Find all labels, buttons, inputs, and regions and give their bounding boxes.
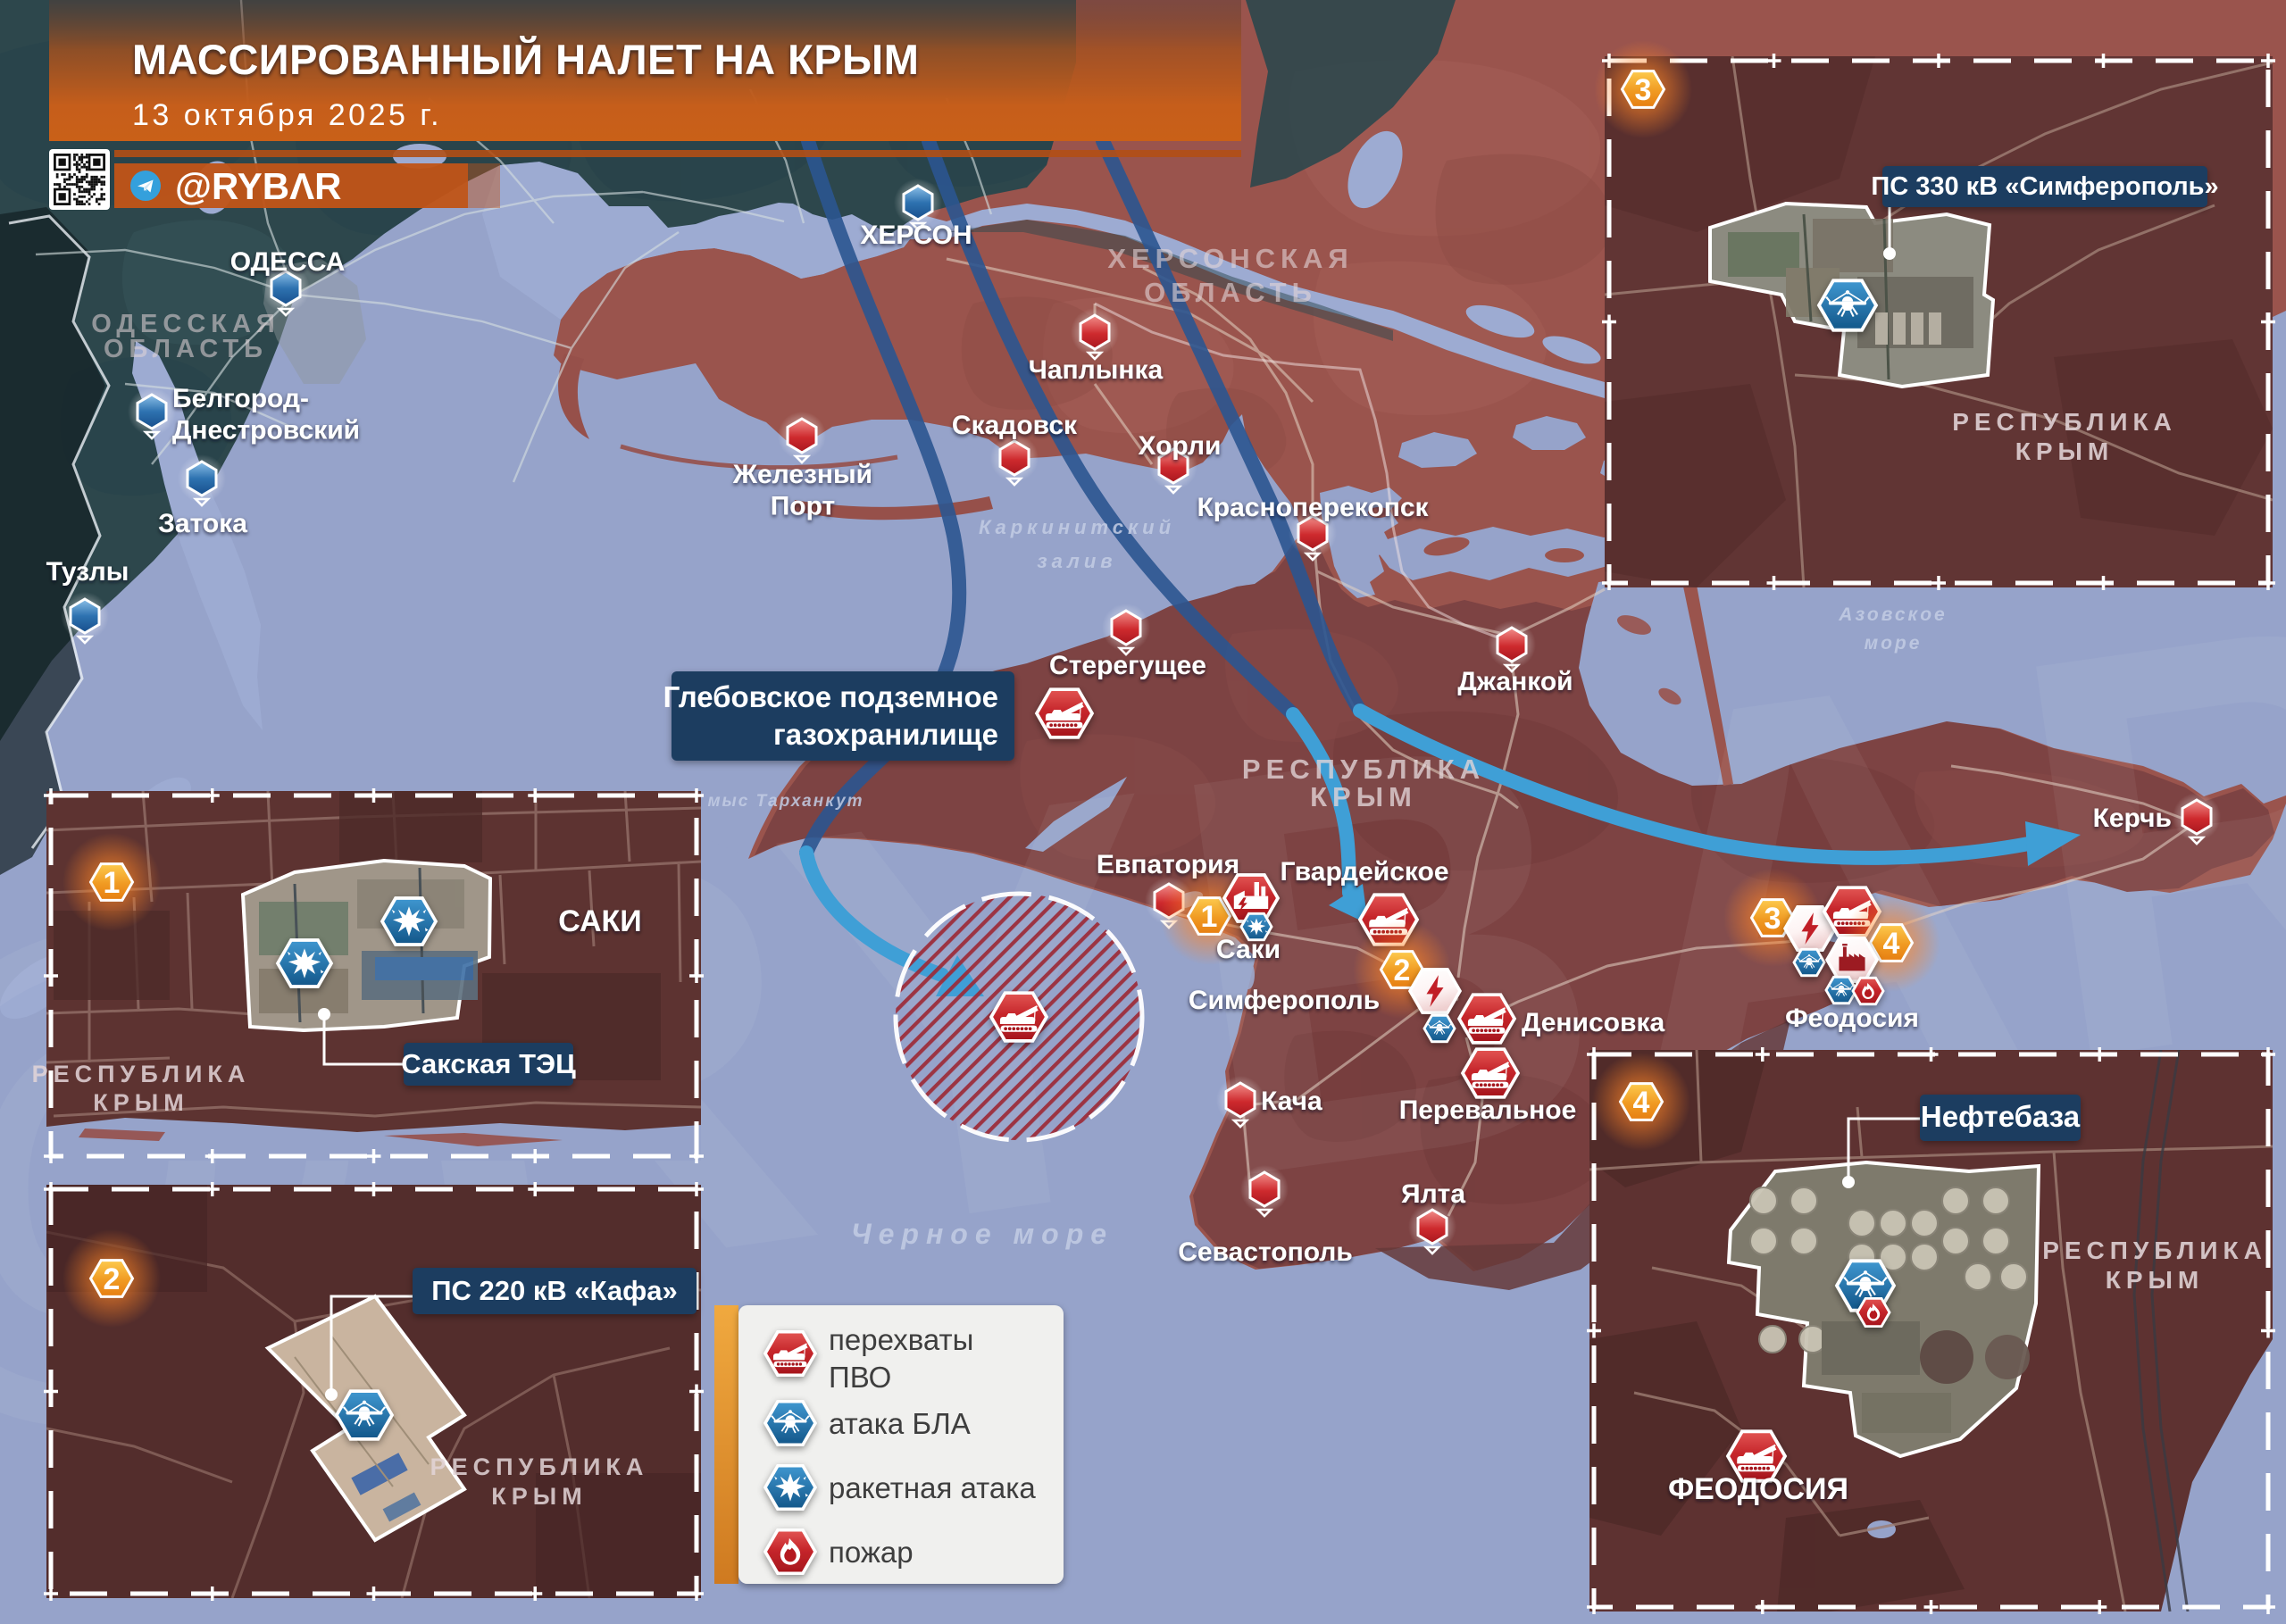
svg-text:Керчь: Керчь bbox=[2093, 804, 2172, 833]
svg-text:пожар: пожар bbox=[829, 1536, 914, 1569]
svg-text:Порт: Порт bbox=[771, 491, 836, 521]
svg-text:залив: залив bbox=[1037, 550, 1116, 572]
svg-text:Феодосия: Феодосия bbox=[1785, 1004, 1919, 1033]
svg-text:Хорли: Хорли bbox=[1138, 431, 1221, 461]
svg-text:РЕСПУБЛИКА: РЕСПУБЛИКА bbox=[2042, 1237, 2267, 1264]
svg-text:Сакская ТЭЦ: Сакская ТЭЦ bbox=[401, 1048, 576, 1079]
svg-text:МАССИРОВАННЫЙ НАЛЕТ НА КРЫМ: МАССИРОВАННЫЙ НАЛЕТ НА КРЫМ bbox=[132, 36, 919, 83]
svg-text:атака БЛА: атака БЛА bbox=[829, 1407, 971, 1440]
svg-text:ФЕОДОСИЯ: ФЕОДОСИЯ bbox=[1668, 1472, 1848, 1506]
svg-text:1: 1 bbox=[104, 866, 121, 900]
svg-text:Джанкой: Джанкой bbox=[1457, 667, 1573, 696]
svg-text:ПС 330 кВ «Симферополь»: ПС 330 кВ «Симферополь» bbox=[1871, 172, 2218, 201]
svg-text:Тузлы: Тузлы bbox=[46, 557, 129, 587]
svg-text:Скадовск: Скадовск bbox=[952, 411, 1078, 440]
svg-text:ХЕРСОН: ХЕРСОН bbox=[860, 221, 972, 250]
svg-text:Железный: Железный bbox=[732, 460, 872, 489]
svg-text:3: 3 bbox=[1635, 73, 1652, 107]
svg-text:Нефтебаза: Нефтебаза bbox=[1921, 1100, 2081, 1133]
svg-text:ПВО: ПВО bbox=[829, 1361, 891, 1394]
svg-text:Стерегущее: Стерегущее bbox=[1049, 651, 1206, 680]
svg-text:Белгород-: Белгород- bbox=[172, 384, 309, 413]
svg-text:КРЫМ: КРЫМ bbox=[491, 1483, 587, 1510]
svg-text:САКИ: САКИ bbox=[558, 904, 641, 938]
svg-text:ОДЕССА: ОДЕССА bbox=[230, 247, 346, 277]
svg-text:3: 3 bbox=[1765, 902, 1781, 936]
svg-text:Перевальное: Перевальное bbox=[1399, 1095, 1577, 1125]
svg-text:КРЫМ: КРЫМ bbox=[2106, 1266, 2205, 1294]
svg-text:РЕСПУБЛИКА: РЕСПУБЛИКА bbox=[1952, 408, 2177, 436]
svg-text:Денисовка: Денисовка bbox=[1522, 1008, 1664, 1037]
svg-text:1: 1 bbox=[1201, 900, 1218, 934]
svg-text:РЕСПУБЛИКА: РЕСПУБЛИКА bbox=[1242, 754, 1485, 785]
svg-text:ракетная атака: ракетная атака bbox=[829, 1471, 1036, 1504]
svg-text:Саки: Саки bbox=[1216, 935, 1281, 964]
svg-text:4: 4 bbox=[1883, 927, 1900, 961]
svg-text:КРЫМ: КРЫМ bbox=[1310, 781, 1417, 812]
svg-text:ОБЛАСТЬ: ОБЛАСТЬ bbox=[1144, 277, 1317, 308]
svg-text:Черное море: Черное море bbox=[851, 1218, 1114, 1250]
svg-text:2: 2 bbox=[104, 1262, 121, 1296]
svg-text:газохранилище: газохранилище bbox=[773, 718, 998, 751]
svg-text:Красноперекопск: Красноперекопск bbox=[1197, 493, 1429, 522]
svg-text:ХЕРСОНСКАЯ: ХЕРСОНСКАЯ bbox=[1107, 243, 1353, 274]
svg-text:перехваты: перехваты bbox=[829, 1323, 973, 1356]
svg-text:Севастополь: Севастополь bbox=[1178, 1237, 1353, 1267]
svg-text:Кача: Кача bbox=[1261, 1087, 1322, 1116]
svg-text:Днестровский: Днестровский bbox=[172, 415, 360, 445]
svg-text:Каркинитский: Каркинитский bbox=[979, 516, 1175, 538]
svg-text:@RYBΛR: @RYBΛR bbox=[175, 165, 341, 207]
svg-text:Азовское: Азовское bbox=[1838, 604, 1947, 625]
svg-text:Чаплынка: Чаплынка bbox=[1029, 355, 1164, 385]
svg-text:4: 4 bbox=[1633, 1086, 1650, 1120]
svg-text:Ялта: Ялта bbox=[1401, 1179, 1465, 1209]
svg-text:РЕСПУБЛИКА: РЕСПУБЛИКА bbox=[430, 1453, 649, 1480]
svg-text:2: 2 bbox=[1394, 954, 1411, 987]
svg-text:Затока: Затока bbox=[158, 509, 247, 538]
svg-text:КРЫМ: КРЫМ bbox=[93, 1089, 188, 1116]
svg-text:Гвардейское: Гвардейское bbox=[1280, 857, 1448, 887]
svg-text:Глебовское подземное: Глебовское подземное bbox=[663, 680, 998, 713]
svg-text:ПС 220 кВ «Кафа»: ПС 220 кВ «Кафа» bbox=[431, 1275, 678, 1306]
svg-text:КРЫМ: КРЫМ bbox=[2015, 437, 2115, 465]
svg-text:море: море bbox=[1865, 633, 1923, 654]
svg-text:РЕСПУБЛИКА: РЕСПУБЛИКА bbox=[32, 1061, 251, 1087]
svg-text:мыс Тарханкут: мыс Тарханкут bbox=[707, 792, 864, 811]
svg-text:13 октября 2025 г.: 13 октября 2025 г. bbox=[132, 98, 442, 132]
svg-text:ОБЛАСТЬ: ОБЛАСТЬ bbox=[104, 335, 268, 363]
svg-text:Симферополь: Симферополь bbox=[1189, 986, 1380, 1015]
